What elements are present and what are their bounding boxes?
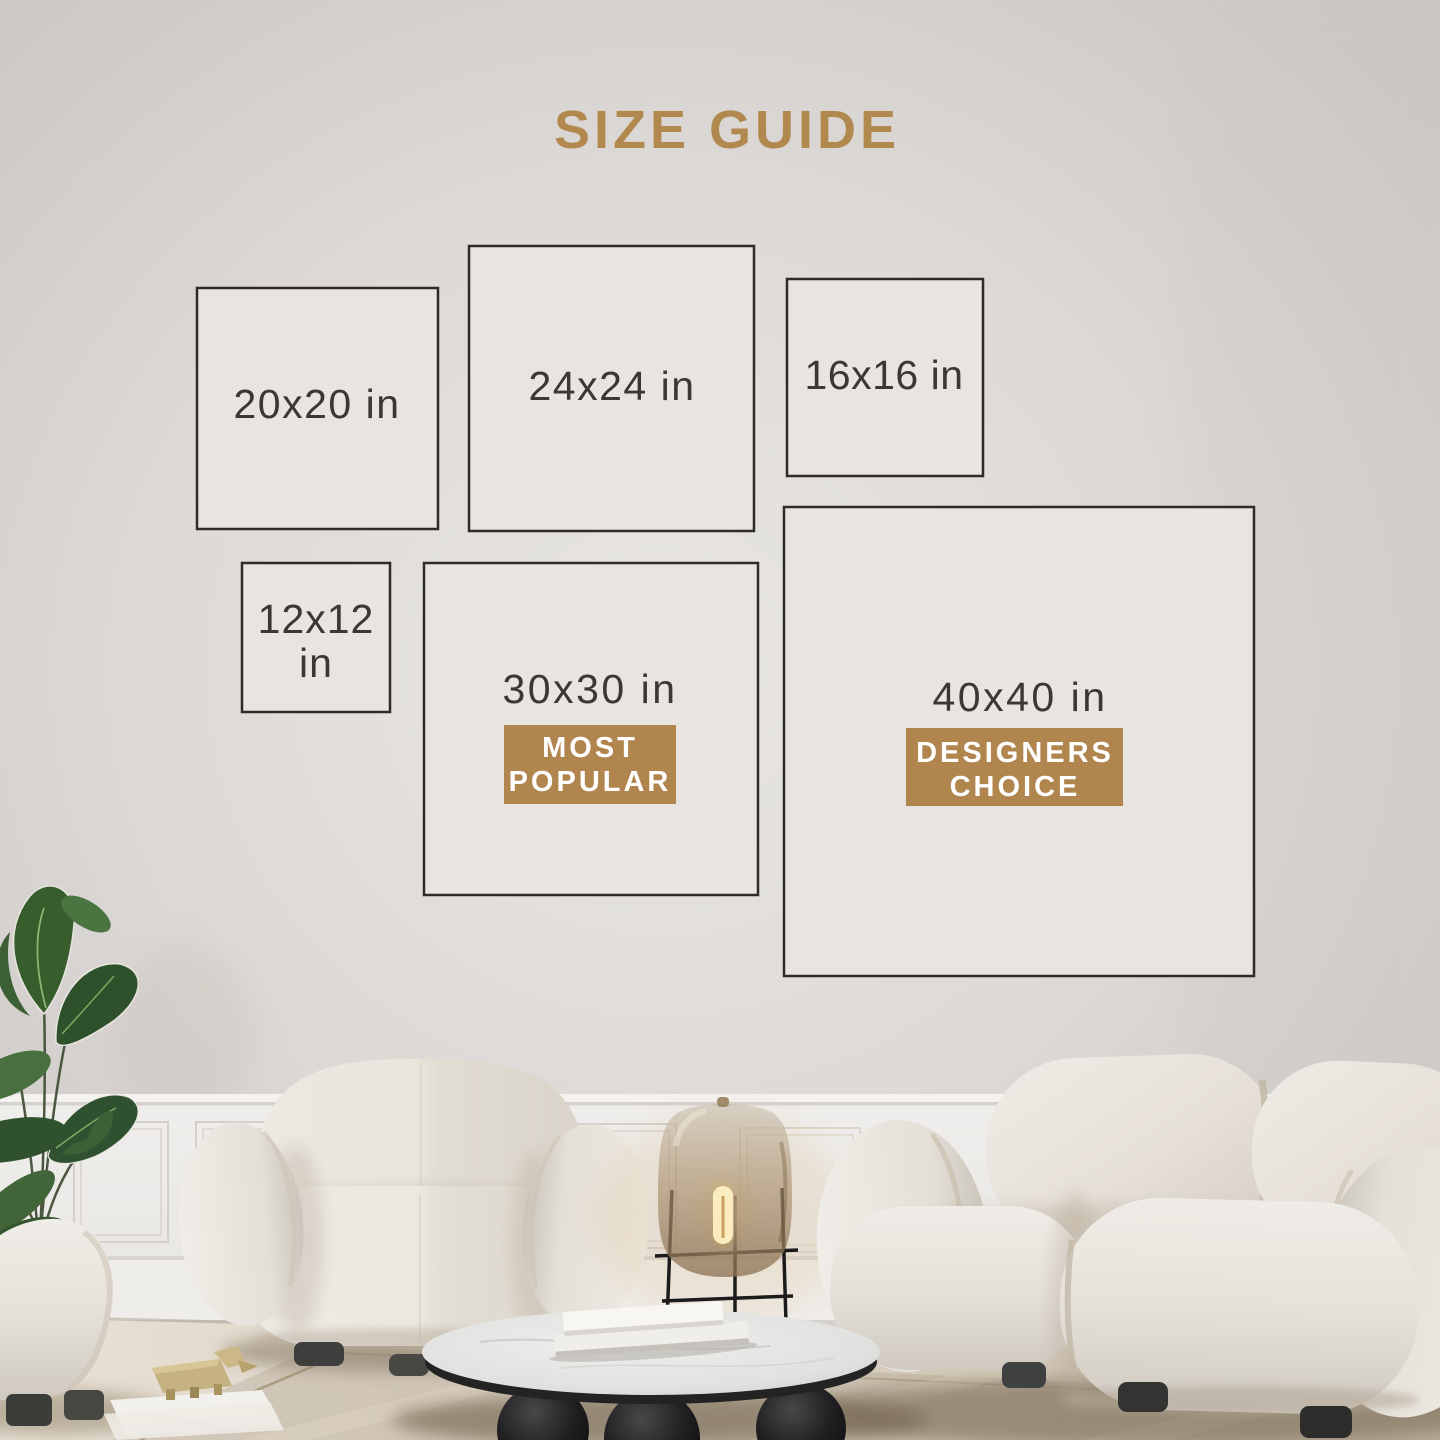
svg-text:in: in	[299, 640, 333, 686]
svg-text:30x30 in: 30x30 in	[502, 666, 677, 712]
svg-text:MOST: MOST	[542, 732, 638, 764]
svg-text:DESIGNERS: DESIGNERS	[916, 737, 1114, 769]
svg-text:CHOICE: CHOICE	[950, 771, 1081, 803]
svg-text:40x40 in: 40x40 in	[932, 674, 1107, 720]
svg-text:12x12: 12x12	[258, 596, 375, 642]
svg-text:POPULAR: POPULAR	[509, 766, 672, 798]
svg-text:SIZE GUIDE: SIZE GUIDE	[554, 100, 900, 160]
svg-text:16x16 in: 16x16 in	[804, 352, 963, 398]
svg-text:20x20 in: 20x20 in	[233, 381, 400, 427]
svg-text:24x24 in: 24x24 in	[528, 363, 695, 409]
